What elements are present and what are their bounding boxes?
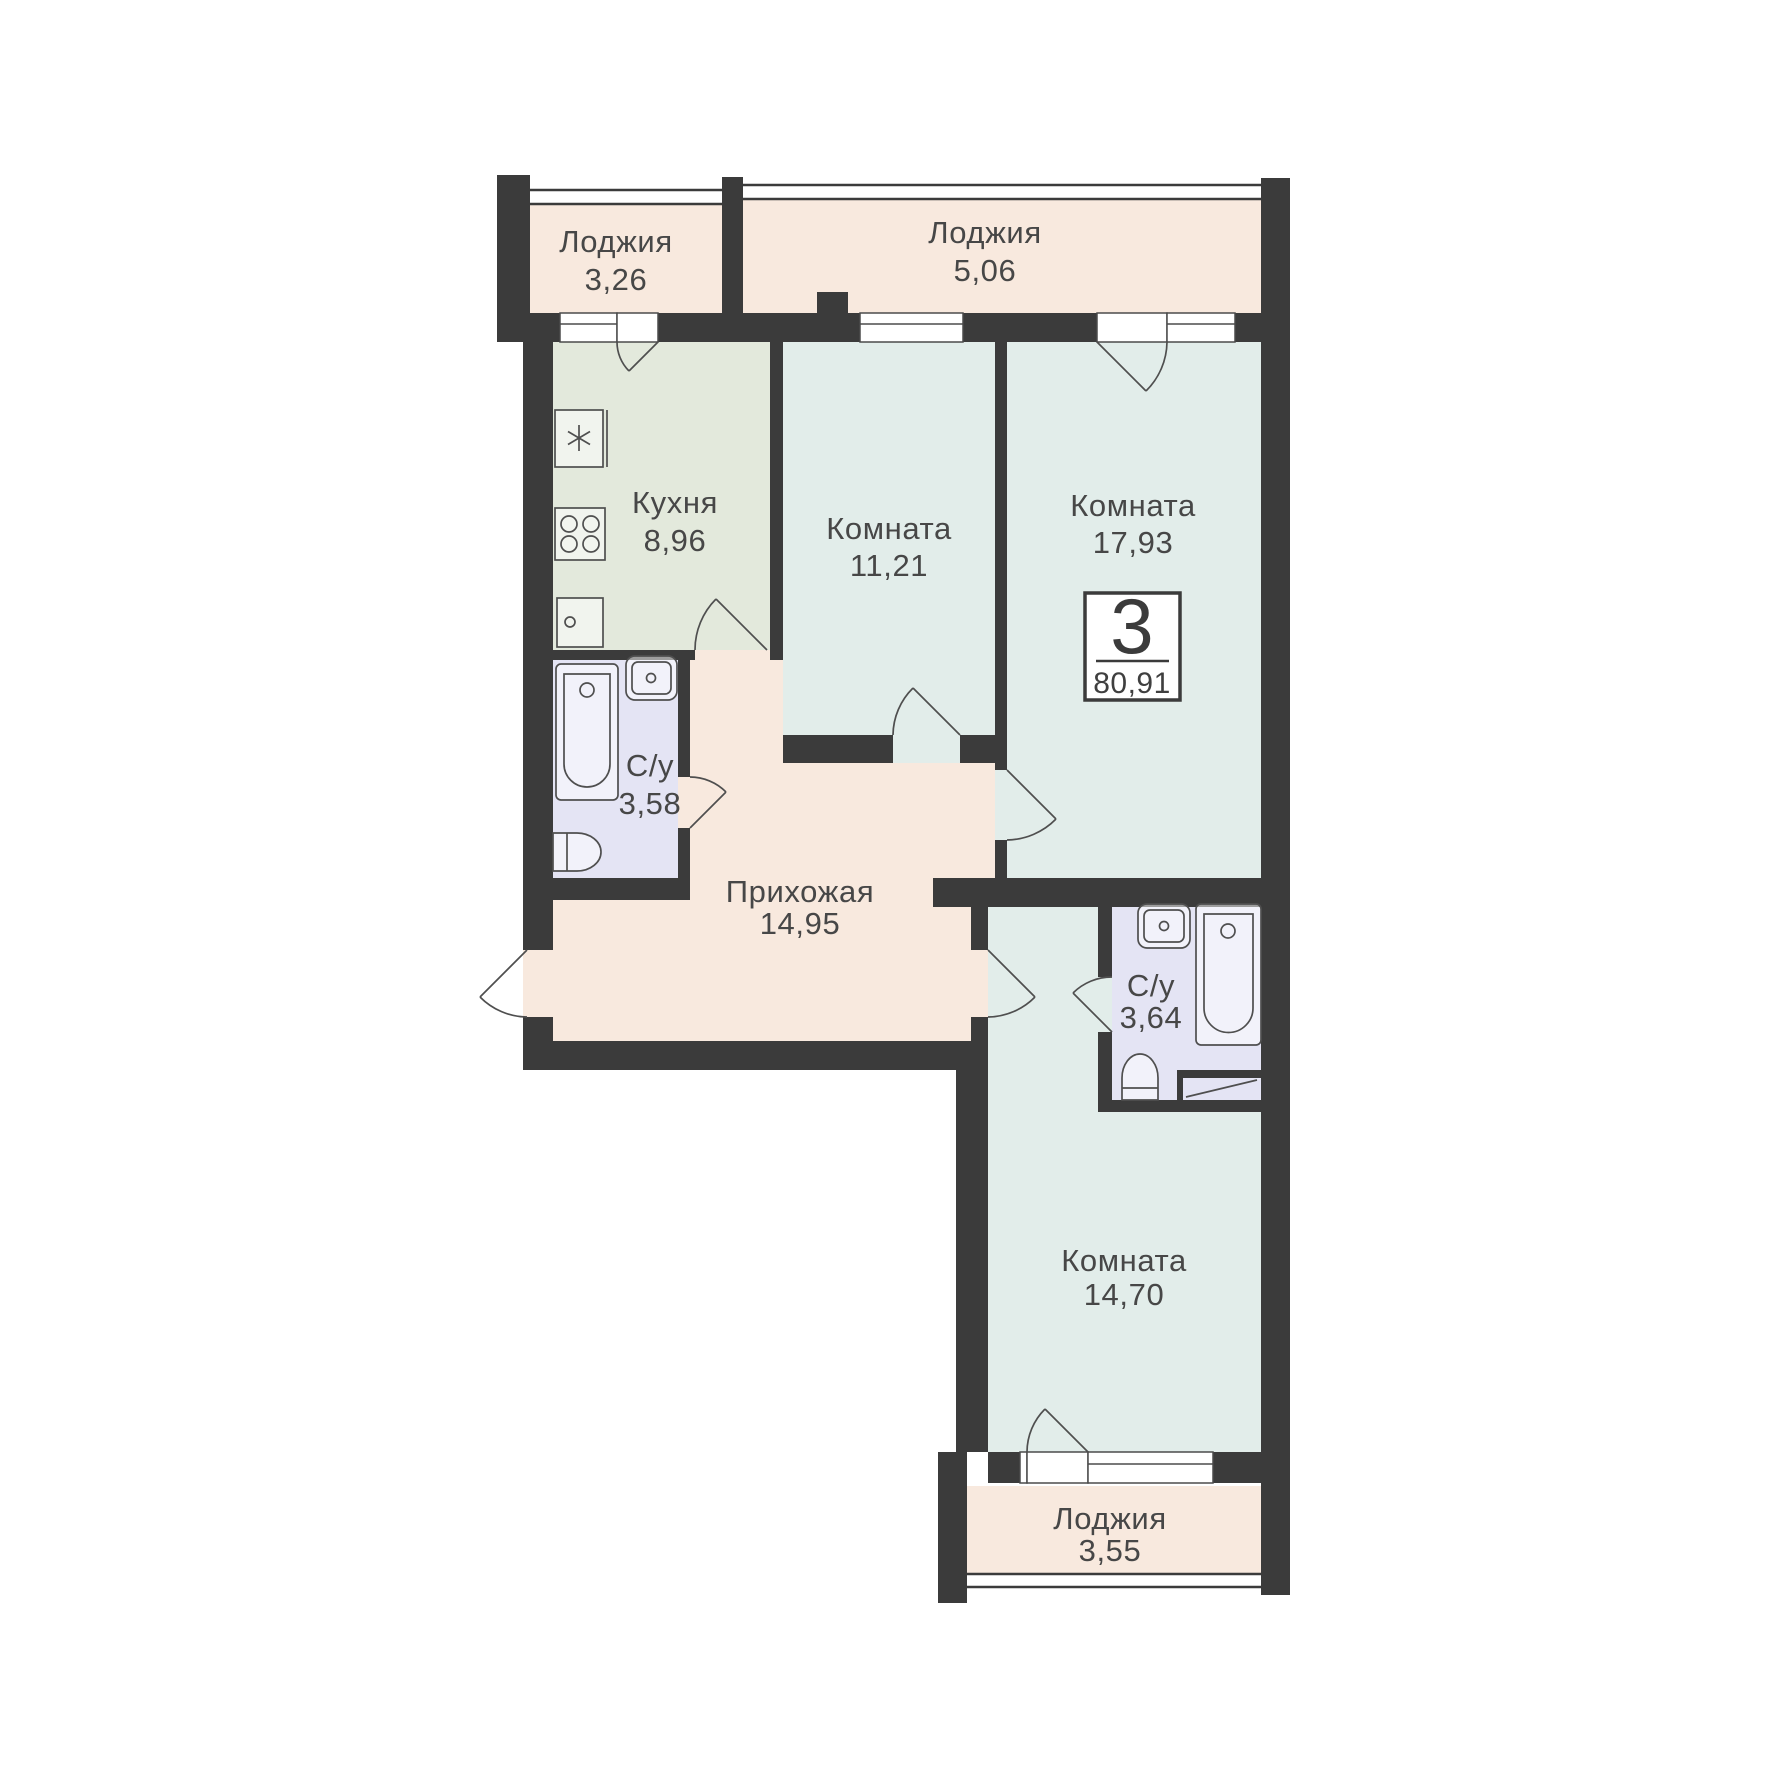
fridge-symbol [555,410,607,467]
floor-plan-page: Лоджия 3,26 Лоджия 5,06 Кухня 8,96 Комна… [0,0,1772,1772]
floor-plan-svg: Лоджия 3,26 Лоджия 5,06 Кухня 8,96 Комна… [0,0,1772,1772]
label-hallway-name: Прихожая [726,874,874,909]
label-loggia-top-right-area: 5,06 [954,253,1017,288]
washbasin-symbol [1138,904,1190,948]
label-bathroom-upper-area: 3,58 [619,786,682,821]
room-small-window [860,313,963,342]
bath-lower-door-threshold [1098,977,1112,1032]
entry-door-threshold [523,950,557,1017]
stove-symbol [555,508,605,560]
kitchen-window [560,313,617,342]
label-loggia-top-left-area: 3,26 [585,262,648,297]
room-bottom-balcony-door-opening [1027,1452,1088,1483]
toilet-symbol [1122,1054,1158,1100]
badge-total-area: 80,91 [1093,667,1171,700]
label-bathroom-lower-area: 3,64 [1120,1000,1183,1035]
bathtub-symbol [556,664,618,800]
label-kitchen-area: 8,96 [644,523,707,558]
room-bottom-window [1020,1452,1027,1483]
entry-door-arc [480,950,527,1017]
label-room-large-name: Комната [1070,488,1196,523]
label-room-bottom-name: Комната [1061,1243,1187,1278]
room-large-balcony-door-opening [1097,313,1167,342]
floor-hallway [690,650,783,763]
label-loggia-bottom-name: Лоджия [1053,1501,1166,1536]
kitchen-sink-symbol [557,598,603,647]
room-large-window [1167,313,1235,342]
label-room-bottom-area: 14,70 [1084,1277,1165,1312]
label-hallway-area: 14,95 [760,906,841,941]
label-loggia-top-right-name: Лоджия [928,215,1041,250]
room-bottom-window [1088,1452,1213,1483]
label-kitchen-name: Кухня [632,485,718,520]
bathtub-symbol [1196,904,1261,1045]
kitchen-balcony-door-opening [617,313,658,342]
badge-rooms-count: 3 [1110,582,1153,670]
label-room-large-area: 17,93 [1093,525,1174,560]
floor-hallway [690,763,995,878]
label-bathroom-upper-name: С/у [626,748,674,783]
label-bathroom-lower-name: С/у [1127,968,1175,1003]
toilet-symbol [553,833,601,871]
label-room-small-name: Комната [826,511,952,546]
label-loggia-bottom-area: 3,55 [1079,1533,1142,1568]
washbasin-symbol [626,656,677,700]
label-room-small-area: 11,21 [850,548,928,583]
label-loggia-top-left-name: Лоджия [559,224,672,259]
room-large-door-threshold [995,770,1007,840]
room-small-door-threshold [893,735,960,763]
hall-room-door-threshold [971,950,988,1017]
floor-room-bottom [988,907,1098,1452]
apartment-badge: 3 80,91 [1085,582,1180,700]
